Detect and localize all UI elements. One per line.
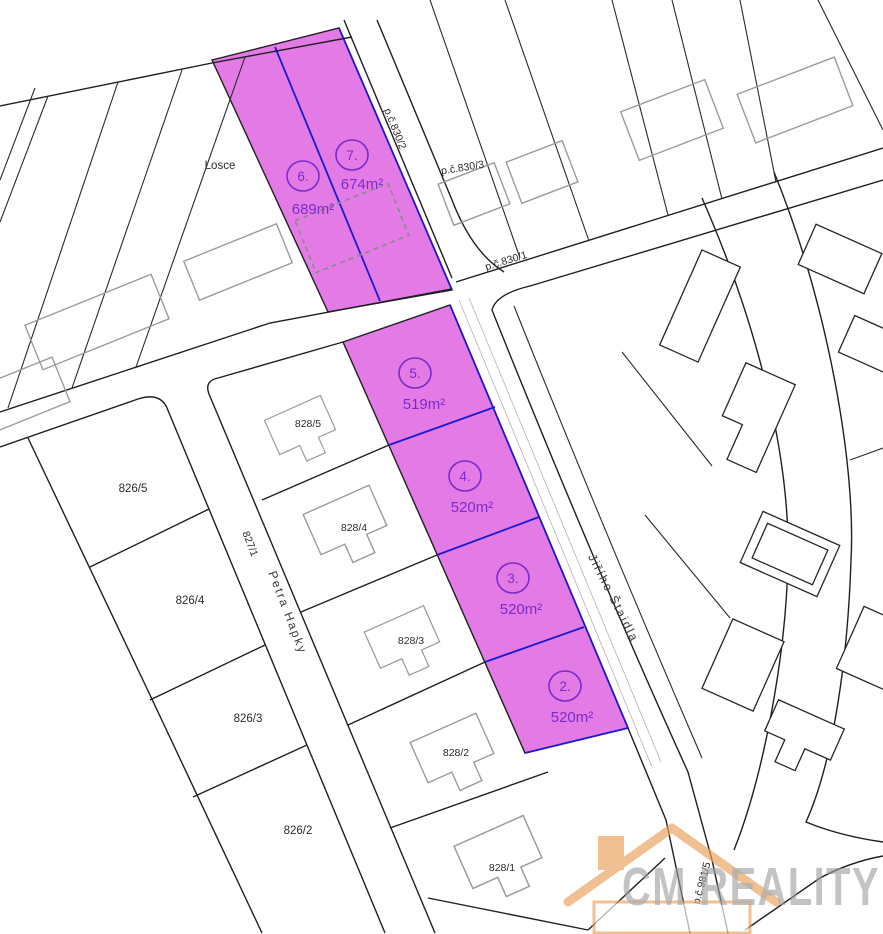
block-826-west-diagonal: [28, 438, 262, 933]
divider-828-4-828-3: [301, 555, 437, 612]
parcel-4-number: 4.: [459, 469, 470, 484]
parcel-label-826-5: 826/5: [119, 483, 148, 495]
building-981-g: [755, 700, 844, 782]
road-e-south-edge-and-west-road: [0, 397, 385, 933]
divider-981-a: [622, 352, 712, 466]
map-canvas: Losce p.č.830/2 p.č.830/3 p.č.830/1 p.č.…: [0, 0, 883, 934]
building-outline-losce-1: [25, 274, 169, 369]
divider-826-4-826-3: [150, 645, 265, 700]
parcel-2-area: 520m²: [551, 709, 594, 726]
losce-strip-4: [136, 57, 245, 367]
divider-826-5-826-4: [90, 509, 209, 567]
strip-830-3-c: [612, 0, 668, 215]
strip-830-3-a: [430, 0, 520, 258]
parcel-4-area: 520m²: [451, 499, 494, 516]
building-981-f: [702, 619, 784, 711]
building-981-c: [798, 224, 882, 293]
building-outline-830-3-d: [737, 57, 853, 143]
house-label-828-2: 828/2: [443, 747, 469, 759]
building-981-d: [838, 316, 883, 377]
highlighted-parcels-block-south: [343, 305, 628, 753]
losce-strip-3: [72, 70, 182, 388]
building-outline-830-3-b: [506, 141, 578, 204]
parcel-label-826-3: 826/3: [234, 713, 263, 725]
parcel-7-number: 7.: [346, 148, 357, 163]
cadastral-map: Losce p.č.830/2 p.č.830/3 p.č.830/1 p.č.…: [0, 0, 883, 934]
strip-830-3-d: [672, 0, 722, 199]
parcel-label-826-2: 826/2: [284, 825, 313, 837]
house-label-828-4: 828/4: [341, 522, 367, 534]
parcel-label-826-4: 826/4: [176, 595, 205, 607]
street-parcel-827-1: 827/1: [239, 530, 260, 559]
house-label-828-3: 828/3: [398, 635, 424, 647]
region-label-losce: Losce: [205, 160, 236, 172]
parcel-7-area: 674m²: [341, 176, 384, 193]
parcel-2-5-fill: [343, 305, 628, 753]
watermark: CM REALITY: [568, 828, 880, 933]
house-label-828-5: 828/5: [295, 418, 321, 430]
east-edge-divider: [850, 448, 883, 460]
divider-826-3-826-2: [193, 745, 307, 797]
building-outline-losce-2: [184, 224, 292, 300]
divider-981-b: [645, 515, 730, 618]
parcel-5-area: 519m²: [403, 396, 446, 413]
parcel-6-7-fill: [212, 28, 452, 312]
building-981-b: [707, 363, 795, 473]
parcel-3-area: 520m²: [500, 601, 543, 618]
losce-strip-1: [0, 96, 48, 222]
strip-830-3-f: [818, 0, 883, 130]
parcel-2-number: 2.: [559, 679, 570, 694]
strip-830-3-b: [505, 0, 589, 241]
building-981-a: [660, 250, 741, 362]
black-buildings: [660, 224, 883, 782]
losce-strip-2: [8, 82, 118, 408]
parcel-3-number: 3.: [507, 571, 518, 586]
house-label-828-1: 828/1: [489, 862, 515, 874]
highlighted-parcels-block-north: [212, 28, 452, 312]
parcel-6-number: 6.: [297, 169, 308, 184]
parcel-5-number: 5.: [409, 366, 420, 381]
parcel-6-area: 689m²: [292, 201, 335, 218]
building-981-h: [836, 606, 883, 689]
house-828-5: [264, 395, 342, 470]
watermark-text: CM REALITY: [622, 857, 880, 917]
road-label-830-1: p.č.830/1: [484, 249, 529, 273]
